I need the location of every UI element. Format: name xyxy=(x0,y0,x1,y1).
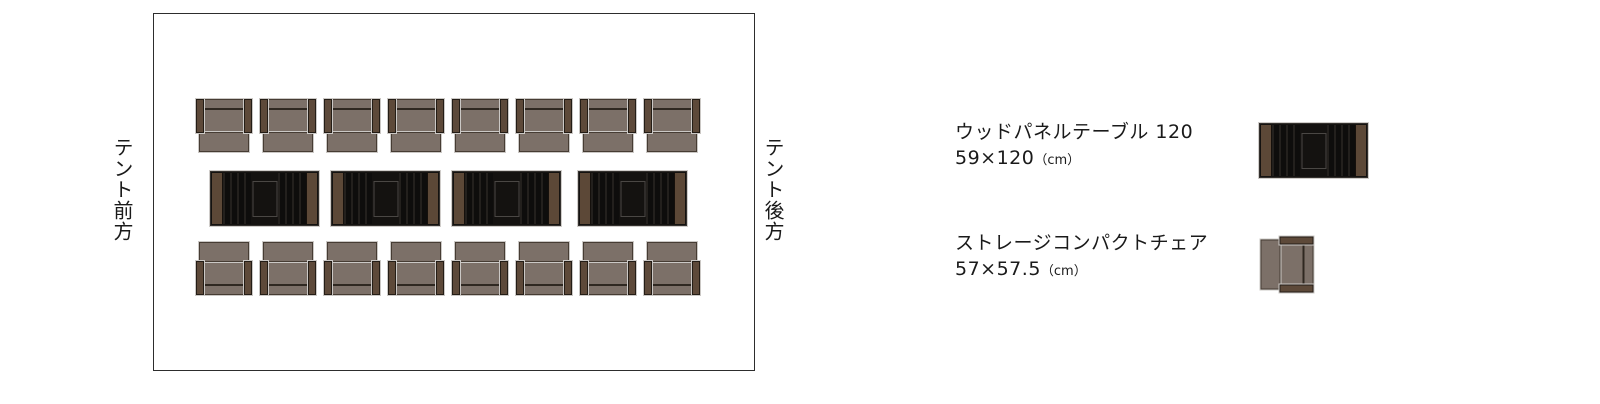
chair xyxy=(516,242,572,295)
chair-backrest-line xyxy=(268,108,308,110)
chair-seat xyxy=(391,132,441,152)
chair-backrest-line xyxy=(652,108,692,110)
chair-armrest-right xyxy=(436,261,444,295)
top-chair-row xyxy=(196,99,700,152)
table-side-panel-left xyxy=(1261,125,1272,176)
chair-armrest-right xyxy=(308,99,316,133)
chair-seat xyxy=(263,242,313,262)
table xyxy=(210,171,319,226)
chair-armrest-left xyxy=(260,261,268,295)
chair xyxy=(324,99,380,152)
chair xyxy=(644,242,700,295)
chair-backrest xyxy=(265,99,311,133)
chair-backrest xyxy=(585,261,631,295)
chair xyxy=(196,242,252,295)
table xyxy=(452,171,561,226)
chair-backrest-line xyxy=(588,284,628,286)
chair-backrest xyxy=(521,261,567,295)
table-slats-right xyxy=(520,173,548,224)
chair-backrest-line xyxy=(332,108,372,110)
chair-armrest-right xyxy=(436,99,444,133)
table-side-panel-left xyxy=(333,173,344,224)
chair-backrest-line xyxy=(460,108,500,110)
chair-armrest-left xyxy=(452,99,460,133)
chair-backrest xyxy=(393,99,439,133)
table-slats-left xyxy=(1272,125,1300,176)
chair-seat xyxy=(327,242,377,262)
chair-seat xyxy=(327,132,377,152)
table-side-panel-right xyxy=(306,173,317,224)
chair-backrest xyxy=(649,99,695,133)
chair-backrest-line xyxy=(396,108,436,110)
chair-armrest-right xyxy=(692,261,700,295)
legend-item-table-dimensions: 59×120（cm） xyxy=(955,145,1193,174)
bottom-chair-row xyxy=(196,242,700,295)
chair-backrest xyxy=(1280,242,1314,288)
chair-backrest-line xyxy=(332,284,372,286)
chair xyxy=(516,99,572,152)
chair-armrest-right xyxy=(628,99,636,133)
chair-seat xyxy=(583,242,633,262)
chair-armrest-left xyxy=(516,261,524,295)
chair-seat xyxy=(1261,240,1281,290)
chair xyxy=(260,242,316,295)
table-slats-left xyxy=(591,173,619,224)
table-side-panel-left xyxy=(454,173,465,224)
chair-seat xyxy=(199,132,249,152)
chair-backrest xyxy=(201,261,247,295)
chair-armrest-left xyxy=(644,261,652,295)
storage-compact-chair-icon xyxy=(1261,236,1314,292)
chair xyxy=(452,99,508,152)
chair-backrest-line xyxy=(588,108,628,110)
table-side-panel-right xyxy=(1355,125,1366,176)
chair xyxy=(452,242,508,295)
table-slats-left xyxy=(465,173,493,224)
table xyxy=(1259,123,1368,178)
chair-armrest-right xyxy=(244,99,252,133)
chair-backrest xyxy=(329,99,375,133)
chair xyxy=(388,242,444,295)
tent-rear-label: テント後方 xyxy=(762,137,784,242)
chair-armrest-left xyxy=(324,261,332,295)
table-slats-left xyxy=(344,173,372,224)
chair xyxy=(580,99,636,152)
chair-backrest xyxy=(393,261,439,295)
tent-front-label: テント前方 xyxy=(111,137,133,242)
chair-armrest-left xyxy=(516,99,524,133)
chair-armrest-left xyxy=(452,261,460,295)
chair-backrest-line xyxy=(396,284,436,286)
chair-armrest-right xyxy=(1280,285,1314,293)
chair xyxy=(196,99,252,152)
table-center-rectangle xyxy=(252,181,277,217)
legend-item-chair-text: ストレージコンパクトチェア 57×57.5（cm） xyxy=(955,230,1208,285)
chair-backrest-line xyxy=(652,284,692,286)
chair xyxy=(388,99,444,152)
chair-armrest-left xyxy=(196,261,204,295)
table-center-rectangle xyxy=(1301,133,1326,169)
chair-armrest-left xyxy=(1280,237,1314,245)
chair-backrest-line xyxy=(524,284,564,286)
chair-seat xyxy=(391,242,441,262)
chair-armrest-left xyxy=(388,261,396,295)
chair-backrest xyxy=(457,99,503,133)
chair-backrest-line xyxy=(204,108,244,110)
chair-armrest-left xyxy=(644,99,652,133)
chair xyxy=(1261,237,1314,293)
chair xyxy=(260,99,316,152)
chair-backrest-line xyxy=(460,284,500,286)
chair-seat xyxy=(647,242,697,262)
chair-armrest-left xyxy=(196,99,204,133)
table xyxy=(331,171,440,226)
legend-item-table-size: 59×120 xyxy=(955,147,1034,169)
chair-backrest-line xyxy=(1303,245,1305,285)
table-side-panel-right xyxy=(548,173,559,224)
chair-armrest-left xyxy=(388,99,396,133)
table-center-rectangle xyxy=(494,181,519,217)
chair-backrest xyxy=(521,99,567,133)
chair-armrest-right xyxy=(564,261,572,295)
chair-armrest-right xyxy=(564,99,572,133)
table-center-rectangle xyxy=(620,181,645,217)
chair-backrest xyxy=(585,99,631,133)
wood-panel-table-icon xyxy=(1259,123,1368,178)
legend-item-chair-dimensions: 57×57.5（cm） xyxy=(955,256,1208,285)
chair-seat xyxy=(519,132,569,152)
table-slats-right xyxy=(1327,125,1355,176)
chair-armrest-right xyxy=(628,261,636,295)
chair-backrest xyxy=(201,99,247,133)
legend-item-chair-unit: （cm） xyxy=(1041,264,1087,279)
chair-armrest-right xyxy=(372,99,380,133)
chair xyxy=(324,242,380,295)
table-side-panel-left xyxy=(212,173,223,224)
chair-seat xyxy=(455,132,505,152)
chair-seat xyxy=(647,132,697,152)
chair xyxy=(644,99,700,152)
chair-backrest xyxy=(329,261,375,295)
chair-seat xyxy=(519,242,569,262)
chair-armrest-right xyxy=(372,261,380,295)
chair-backrest-line xyxy=(204,284,244,286)
chair-armrest-left xyxy=(580,261,588,295)
table-center-rectangle xyxy=(373,181,398,217)
legend-item-chair-size: 57×57.5 xyxy=(955,258,1041,280)
table-slats-right xyxy=(646,173,674,224)
chair-seat xyxy=(199,242,249,262)
table-side-panel-right xyxy=(427,173,438,224)
table xyxy=(578,171,687,226)
chair xyxy=(580,242,636,295)
chair-seat xyxy=(455,242,505,262)
chair-seat xyxy=(583,132,633,152)
chair-backrest xyxy=(265,261,311,295)
legend-item-table-text: ウッドパネルテーブル 120 59×120（cm） xyxy=(955,119,1193,174)
legend-item-table-unit: （cm） xyxy=(1034,153,1080,168)
chair-armrest-right xyxy=(244,261,252,295)
table-slats-right xyxy=(399,173,427,224)
table-side-panel-right xyxy=(674,173,685,224)
chair-armrest-right xyxy=(692,99,700,133)
chair-backrest-line xyxy=(268,284,308,286)
chair-backrest xyxy=(649,261,695,295)
chair-armrest-left xyxy=(260,99,268,133)
table-side-panel-left xyxy=(580,173,591,224)
chair-armrest-right xyxy=(308,261,316,295)
chair-backrest xyxy=(457,261,503,295)
legend-item-table-name: ウッドパネルテーブル 120 xyxy=(955,119,1193,145)
legend-item-chair-name: ストレージコンパクトチェア xyxy=(955,230,1208,256)
chair-armrest-left xyxy=(580,99,588,133)
table-row xyxy=(210,171,687,226)
chair-armrest-right xyxy=(500,99,508,133)
table-slats-right xyxy=(278,173,306,224)
chair-armrest-left xyxy=(324,99,332,133)
chair-seat xyxy=(263,132,313,152)
chair-armrest-right xyxy=(500,261,508,295)
chair-backrest-line xyxy=(524,108,564,110)
table-slats-left xyxy=(223,173,251,224)
